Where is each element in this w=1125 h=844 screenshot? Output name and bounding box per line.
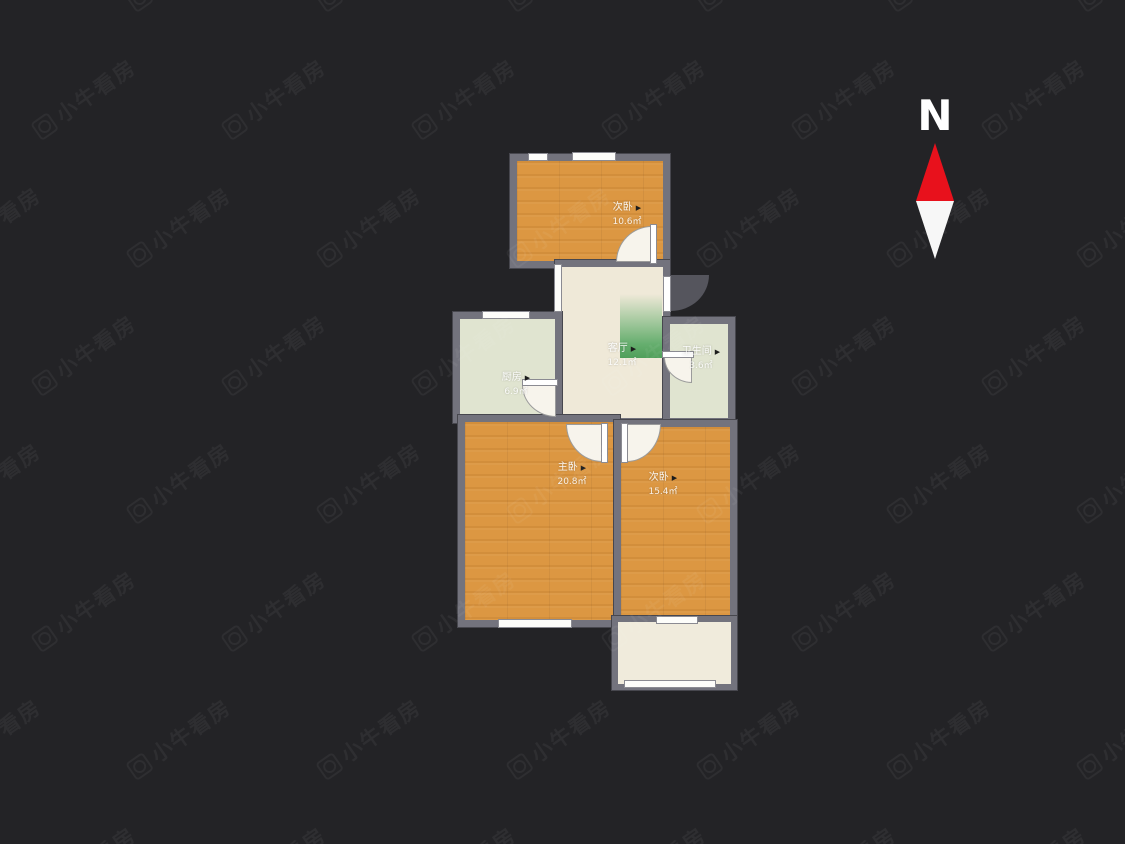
watermark-item: 小牛看房	[977, 564, 1092, 657]
watermark-logo-icon	[125, 751, 154, 780]
room-area: 6.9㎡	[502, 386, 530, 400]
watermark-text: 小牛看房	[144, 436, 237, 513]
label-arrow-icon: ▶	[631, 345, 636, 353]
watermark-logo-icon	[505, 751, 534, 780]
watermark-text: 小牛看房	[809, 564, 902, 641]
label-arrow-icon: ▶	[636, 204, 641, 212]
watermark-text: 小牛看房	[809, 308, 902, 385]
watermark-logo-icon	[600, 111, 629, 140]
watermark-text: 小牛看房	[429, 820, 522, 844]
watermark-logo-icon	[125, 239, 154, 268]
watermark-item: 小牛看房	[692, 180, 807, 273]
watermark-item: 小牛看房	[122, 0, 237, 16]
watermark-logo-icon	[695, 0, 724, 13]
watermark-text: 小牛看房	[619, 820, 712, 844]
watermark-item: 小牛看房	[217, 820, 332, 844]
watermark-logo-icon	[315, 495, 344, 524]
watermark-item: 小牛看房	[1072, 0, 1125, 16]
watermark-text: 小牛看房	[809, 820, 902, 844]
watermark-text: 小牛看房	[524, 0, 617, 1]
room-area: 3.6㎡	[682, 360, 720, 374]
label-arrow-icon: ▶	[581, 464, 586, 472]
window	[656, 616, 698, 624]
watermark-logo-icon	[695, 239, 724, 268]
watermark-logo-icon	[1075, 751, 1104, 780]
entry-door-leaf	[663, 276, 671, 312]
label-arrow-icon: ▶	[715, 348, 720, 356]
room-label-bedroom-top: 次卧▶ 10.6㎡	[612, 200, 641, 229]
watermark-item: 小牛看房	[1072, 180, 1125, 273]
watermark-text: 小牛看房	[334, 0, 427, 1]
watermark-item: 小牛看房	[787, 820, 902, 844]
compass-needle-south-icon	[916, 201, 954, 259]
watermark-item: 小牛看房	[597, 52, 712, 145]
watermark-text: 小牛看房	[239, 820, 332, 844]
room-label-kitchen: 厨房▶ 6.9㎡	[502, 370, 530, 399]
watermark-text: 小牛看房	[144, 0, 237, 1]
watermark-text: 小牛看房	[1094, 0, 1125, 1]
watermark-logo-icon	[410, 623, 439, 652]
watermark-item: 小牛看房	[882, 0, 997, 16]
watermark-item: 小牛看房	[692, 692, 807, 785]
watermark-logo-icon	[220, 367, 249, 396]
watermark-item: 小牛看房	[407, 820, 522, 844]
watermark-item: 小牛看房	[122, 180, 237, 273]
watermark-logo-icon	[1075, 495, 1104, 524]
watermark-item: 小牛看房	[217, 52, 332, 145]
watermark-text: 小牛看房	[144, 692, 237, 769]
watermark-item: 小牛看房	[977, 820, 1092, 844]
room-label-bedroom-2: 次卧▶ 15.4㎡	[648, 470, 677, 499]
watermark-item: 小牛看房	[0, 436, 47, 529]
watermark-text: 小牛看房	[334, 180, 427, 257]
watermark-text: 小牛看房	[714, 692, 807, 769]
compass: N	[895, 95, 975, 259]
window	[528, 153, 548, 161]
watermark-text: 小牛看房	[49, 308, 142, 385]
watermark-logo-icon	[410, 111, 439, 140]
room-name: 厨房	[502, 372, 522, 383]
watermark-item: 小牛看房	[787, 308, 902, 401]
watermark-item: 小牛看房	[27, 564, 142, 657]
watermark-logo-icon	[315, 0, 344, 13]
watermark-text: 小牛看房	[144, 180, 237, 257]
watermark-logo-icon	[1075, 0, 1104, 13]
watermark-text: 小牛看房	[524, 692, 617, 769]
watermark-text: 小牛看房	[1094, 692, 1125, 769]
watermark-text: 小牛看房	[714, 180, 807, 257]
watermark-item: 小牛看房	[0, 0, 47, 16]
watermark-item: 小牛看房	[217, 308, 332, 401]
watermark-item: 小牛看房	[502, 692, 617, 785]
watermark-text: 小牛看房	[1094, 180, 1125, 257]
watermark-logo-icon	[410, 367, 439, 396]
watermark-text: 小牛看房	[49, 820, 142, 844]
watermark-text: 小牛看房	[334, 692, 427, 769]
watermark-logo-icon	[790, 623, 819, 652]
watermark-item: 小牛看房	[312, 436, 427, 529]
room-name: 客厅	[608, 343, 628, 354]
watermark-text: 小牛看房	[999, 564, 1092, 641]
watermark-logo-icon	[30, 623, 59, 652]
watermark-text: 小牛看房	[714, 0, 807, 1]
watermark-logo-icon	[790, 367, 819, 396]
watermark-item: 小牛看房	[312, 692, 427, 785]
watermark-item: 小牛看房	[122, 436, 237, 529]
watermark-text: 小牛看房	[999, 308, 1092, 385]
room-area: 12.1㎡	[607, 357, 636, 371]
watermark-item: 小牛看房	[312, 0, 427, 16]
watermark-logo-icon	[1075, 239, 1104, 268]
watermark-text: 小牛看房	[49, 564, 142, 641]
room-area: 15.4㎡	[648, 486, 677, 500]
watermark-text: 小牛看房	[0, 180, 47, 257]
watermark-logo-icon	[790, 111, 819, 140]
watermark-text: 小牛看房	[0, 436, 47, 513]
door-leaf	[650, 224, 657, 264]
watermark-logo-icon	[30, 111, 59, 140]
watermark-item: 小牛看房	[882, 692, 997, 785]
watermark-logo-icon	[980, 623, 1009, 652]
watermark-logo-icon	[125, 0, 154, 13]
watermark-text: 小牛看房	[49, 52, 142, 129]
watermark-text: 小牛看房	[904, 436, 997, 513]
watermark-text: 小牛看房	[619, 52, 712, 129]
watermark-logo-icon	[315, 239, 344, 268]
window	[572, 152, 616, 161]
window	[554, 264, 562, 312]
room-name: 次卧	[649, 472, 669, 483]
watermark-item: 小牛看房	[0, 692, 47, 785]
door-leaf	[601, 423, 608, 463]
watermark-item: 小牛看房	[27, 308, 142, 401]
watermark-logo-icon	[885, 751, 914, 780]
watermark-text: 小牛看房	[809, 52, 902, 129]
room-name: 次卧	[613, 202, 633, 213]
watermark-item: 小牛看房	[407, 52, 522, 145]
watermark-logo-icon	[125, 495, 154, 524]
watermark-text: 小牛看房	[239, 308, 332, 385]
watermark-text: 小牛看房	[0, 692, 47, 769]
compass-needle-north-icon	[916, 143, 954, 201]
watermark-logo-icon	[220, 111, 249, 140]
room-area: 20.8㎡	[557, 476, 586, 490]
watermark-item: 小牛看房	[0, 180, 47, 273]
watermark-text: 小牛看房	[999, 52, 1092, 129]
watermark-text: 小牛看房	[239, 564, 332, 641]
watermark-logo-icon	[885, 495, 914, 524]
watermark-text: 小牛看房	[904, 692, 997, 769]
compass-north-label: N	[895, 95, 975, 137]
watermark-item: 小牛看房	[977, 308, 1092, 401]
watermark-item: 小牛看房	[217, 564, 332, 657]
watermark-logo-icon	[695, 751, 724, 780]
watermark-logo-icon	[220, 623, 249, 652]
watermark-text: 小牛看房	[334, 436, 427, 513]
label-arrow-icon: ▶	[525, 374, 530, 382]
watermark-text: 小牛看房	[429, 52, 522, 129]
watermark-logo-icon	[885, 0, 914, 13]
watermark-text: 小牛看房	[239, 52, 332, 129]
watermark-item: 小牛看房	[312, 180, 427, 273]
watermark-text: 小牛看房	[0, 0, 47, 1]
watermark-logo-icon	[505, 0, 534, 13]
label-arrow-icon: ▶	[672, 474, 677, 482]
watermark-item: 小牛看房	[122, 692, 237, 785]
room-name: 主卧	[558, 462, 578, 473]
room-name: 卫生间	[682, 346, 712, 357]
room-label-living: 客厅▶ 12.1㎡	[607, 341, 636, 370]
watermark-logo-icon	[30, 367, 59, 396]
watermark-item: 小牛看房	[977, 52, 1092, 145]
watermark-text: 小牛看房	[999, 820, 1092, 844]
room-label-bathroom: 卫生间▶ 3.6㎡	[682, 344, 720, 373]
door-leaf	[621, 423, 628, 463]
watermark-item: 小牛看房	[1072, 692, 1125, 785]
room-label-master-bedroom: 主卧▶ 20.8㎡	[557, 460, 586, 489]
entry-door-swing	[671, 275, 709, 311]
watermark-text: 小牛看房	[904, 0, 997, 1]
watermark-item: 小牛看房	[692, 0, 807, 16]
watermark-item: 小牛看房	[882, 436, 997, 529]
watermark-item: 小牛看房	[27, 52, 142, 145]
watermark-text: 小牛看房	[1094, 436, 1125, 513]
watermark-item: 小牛看房	[787, 564, 902, 657]
watermark-item: 小牛看房	[502, 0, 617, 16]
watermark-item: 小牛看房	[787, 52, 902, 145]
watermark-item: 小牛看房	[1072, 436, 1125, 529]
window	[482, 311, 530, 319]
window	[498, 619, 572, 628]
room-balcony	[612, 616, 737, 690]
watermark-item: 小牛看房	[27, 820, 142, 844]
window	[624, 680, 716, 688]
watermark-logo-icon	[980, 111, 1009, 140]
watermark-logo-icon	[315, 751, 344, 780]
watermark-logo-icon	[980, 367, 1009, 396]
watermark-item: 小牛看房	[597, 820, 712, 844]
room-area: 10.6㎡	[612, 216, 641, 230]
